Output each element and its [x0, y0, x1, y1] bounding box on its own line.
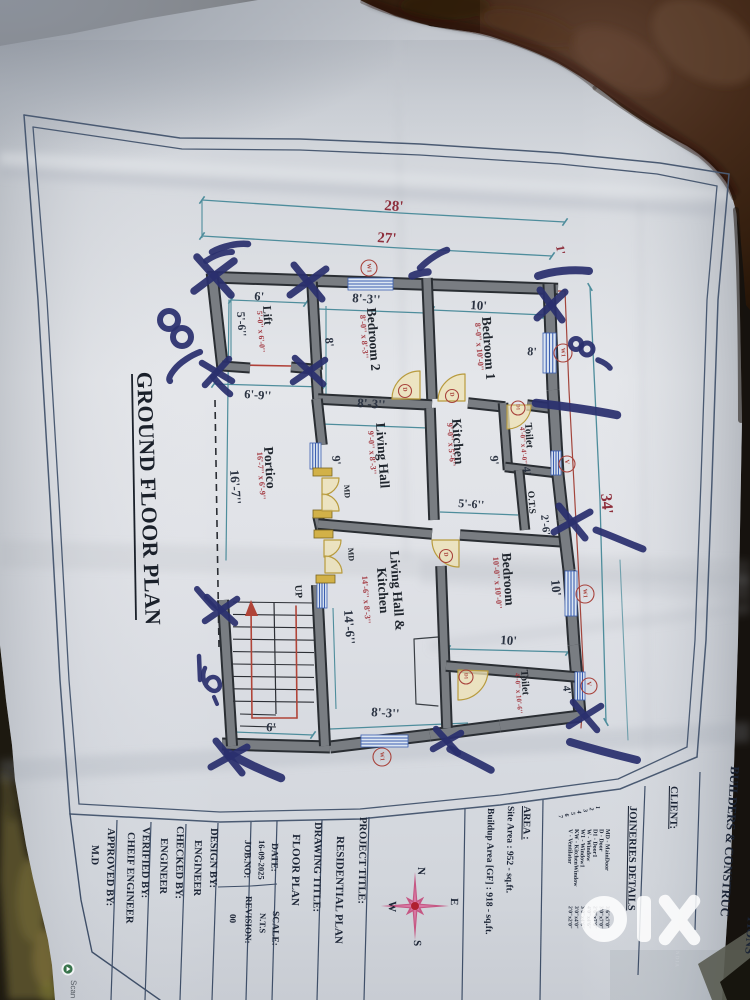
svg-text:E: E: [448, 898, 460, 906]
svg-text:8'-3'': 8'-3'': [371, 704, 400, 721]
svg-text:RESIDENTIAL PLAN: RESIDENTIAL PLAN: [332, 836, 346, 944]
svg-text:DATE:: DATE:: [268, 843, 279, 872]
svg-text:4': 4': [520, 466, 533, 476]
svg-text:10': 10': [470, 297, 488, 313]
svg-text:8'-3'': 8'-3'': [352, 290, 381, 307]
svg-text:MD: MD: [342, 485, 352, 499]
svg-text:ENGINEER: ENGINEER: [157, 838, 169, 895]
svg-text:9': 9': [329, 455, 344, 466]
svg-text:5'-6'': 5'-6'': [458, 496, 485, 512]
svg-text:27': 27': [377, 230, 397, 247]
svg-text:16'-7'': 16'-7'': [227, 469, 244, 505]
svg-text:D1: D1: [514, 404, 519, 411]
svg-text:V - Ventilator: V - Ventilator: [566, 829, 573, 864]
svg-text:14'-6'': 14'-6'': [341, 609, 358, 645]
svg-text:2'0″x2'0″: 2'0″x2'0″: [566, 906, 572, 929]
svg-text:3: 3: [582, 809, 588, 812]
svg-text:W1: W1: [559, 348, 566, 357]
svg-text:I N D I A: I N D I A: [674, 948, 679, 967]
svg-text:5: 5: [569, 812, 575, 815]
svg-text:6': 6': [254, 289, 265, 304]
svg-text:5'-6'': 5'-6'': [234, 311, 248, 337]
svg-text:4: 4: [575, 810, 581, 813]
svg-text:9': 9': [487, 455, 502, 466]
svg-text:APPROVED BY:: APPROVED BY:: [104, 828, 116, 906]
svg-text:N: N: [415, 867, 427, 875]
svg-text:REVISION:: REVISION:: [243, 896, 254, 944]
svg-text:10': 10': [500, 632, 518, 648]
svg-text:W1: W1: [365, 263, 372, 272]
svg-text:8': 8': [322, 337, 337, 348]
svg-text:DRAWING TITLE:: DRAWING TITLE:: [310, 822, 323, 912]
svg-text:UP: UP: [292, 584, 304, 598]
svg-text:FLOOR PLAN: FLOOR PLAN: [289, 834, 302, 906]
svg-text:DESIGN BY:: DESIGN BY:: [207, 828, 219, 888]
svg-text:Scan: Scan: [69, 980, 78, 998]
svg-text:00: 00: [228, 914, 238, 924]
svg-text:8': 8': [527, 344, 538, 359]
svg-text:M.D: M.D: [89, 845, 100, 866]
svg-text:1: 1: [594, 806, 600, 809]
svg-text:CHEIF ENGINEER: CHEIF ENGINEER: [123, 832, 136, 924]
svg-text:7: 7: [557, 815, 563, 818]
svg-text:4': 4': [560, 685, 573, 695]
svg-text:CLIENT:: CLIENT:: [667, 786, 679, 829]
svg-text:6': 6': [266, 720, 277, 735]
svg-text:AREA :: AREA :: [520, 806, 532, 840]
svg-text:6: 6: [563, 813, 569, 816]
svg-text:6'-9'': 6'-9'': [244, 387, 272, 403]
svg-text:D1: D1: [462, 673, 467, 680]
svg-text:V: V: [585, 681, 592, 686]
svg-text:34': 34': [597, 493, 616, 515]
svg-text:JOINERIES DETAILS: JOINERIES DETAILS: [625, 806, 638, 911]
svg-text:28': 28': [384, 198, 404, 215]
svg-text:N.T.S: N.T.S: [258, 913, 268, 934]
svg-text:W1: W1: [581, 589, 588, 598]
svg-text:2: 2: [588, 807, 594, 810]
svg-text:ENGINEER: ENGINEER: [191, 840, 203, 897]
svg-text:V: V: [563, 459, 570, 464]
svg-text:O.T.S: O.T.S: [525, 491, 537, 515]
svg-text:W: W: [386, 901, 398, 912]
svg-text:8'-3'': 8'-3'': [357, 395, 386, 412]
svg-text:16-09-2025: 16-09-2025: [256, 840, 267, 880]
svg-text:CHECKED BY:: CHECKED BY:: [173, 826, 185, 899]
svg-text:PROJECT TITLE:: PROJECT TITLE:: [355, 817, 368, 904]
svg-text:10': 10': [548, 579, 565, 597]
svg-text:W1: W1: [378, 752, 385, 761]
svg-text:2'-6'': 2'-6'': [538, 514, 552, 539]
svg-text:VERIFIED BY:: VERIFIED BY:: [139, 827, 151, 898]
svg-text:MD: MD: [346, 548, 356, 562]
svg-text:Site Area : 952 - sq.ft.: Site Area : 952 - sq.ft.: [503, 806, 515, 893]
svg-text:S: S: [411, 940, 423, 946]
svg-text:SCALE:: SCALE:: [269, 911, 280, 946]
svg-text:JOB.NO:: JOB.NO:: [241, 840, 252, 878]
